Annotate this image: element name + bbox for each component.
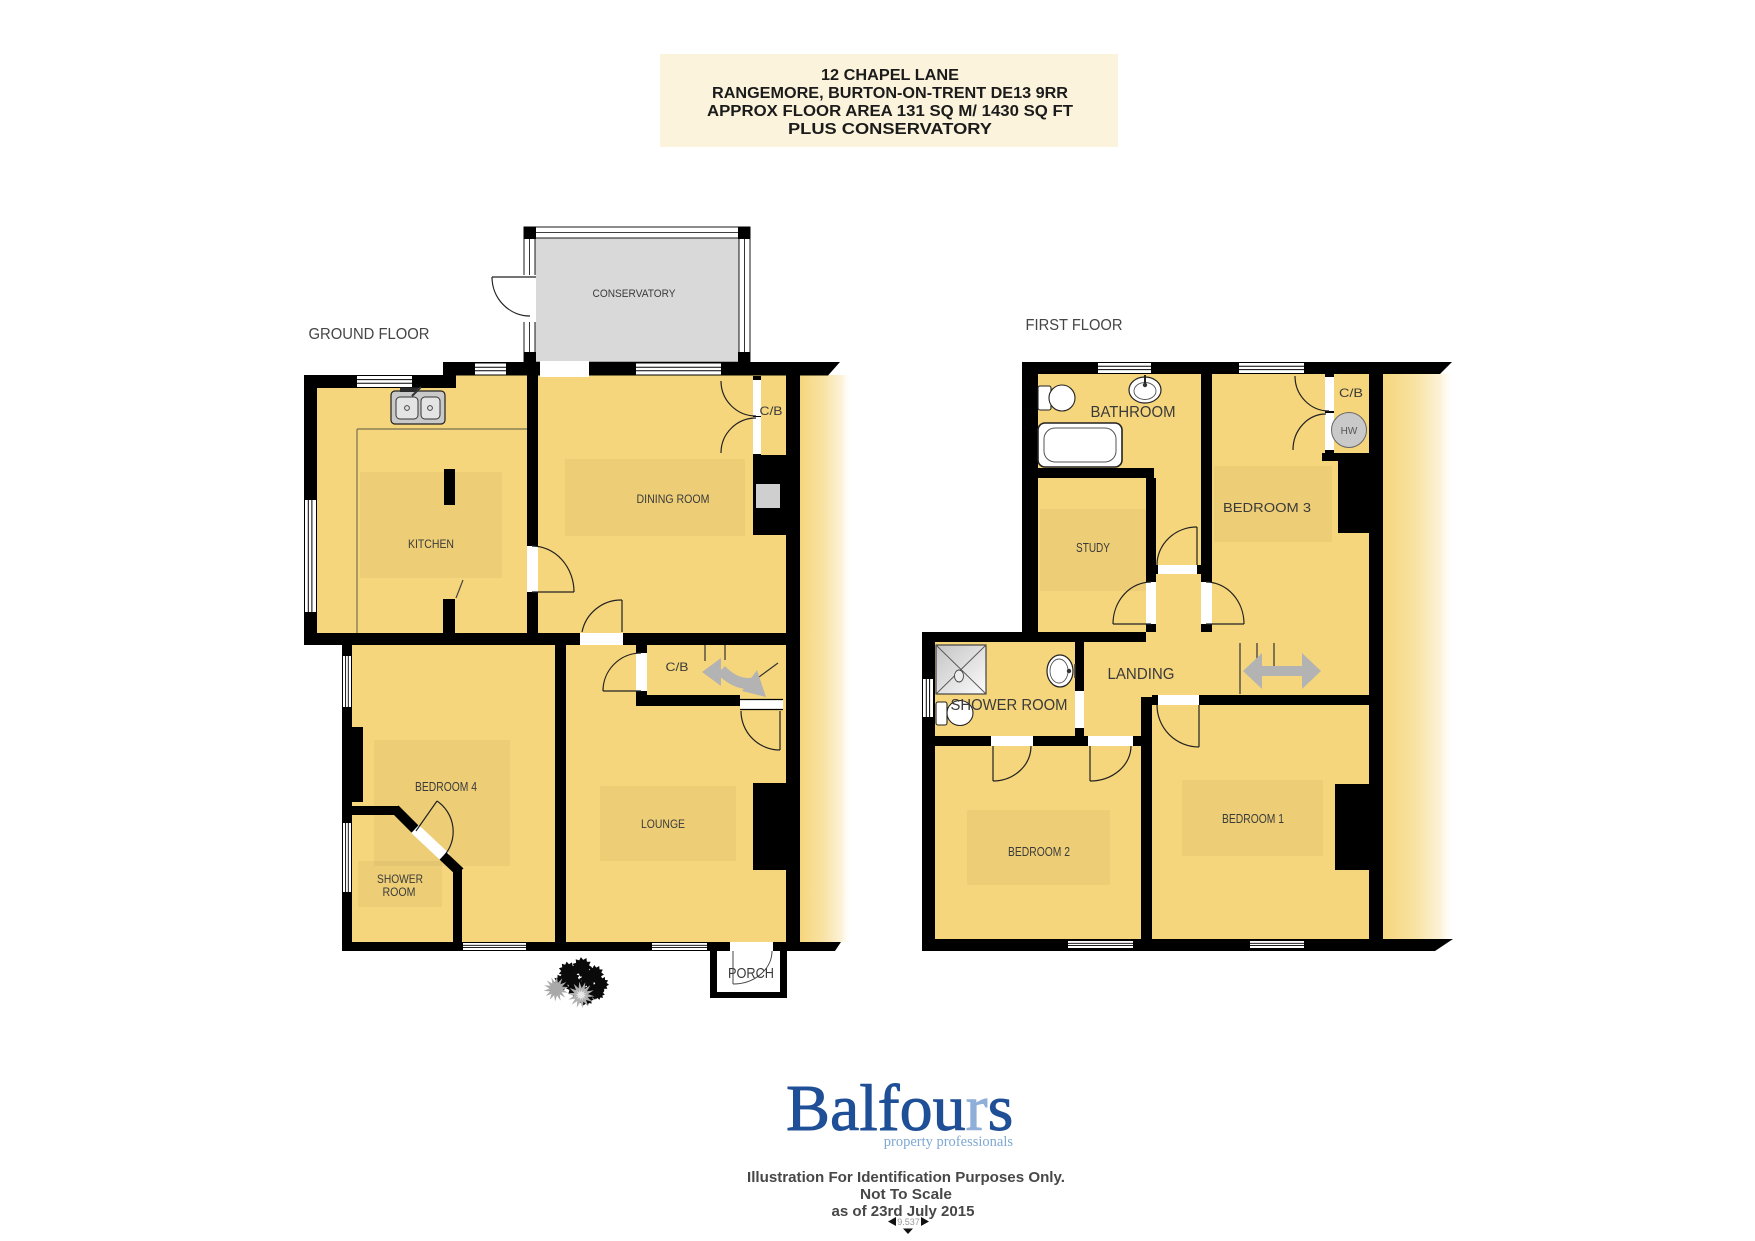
svg-text:GROUND FLOOR: GROUND FLOOR bbox=[309, 326, 430, 343]
svg-text:12 CHAPEL LANE: 12 CHAPEL LANE bbox=[821, 67, 959, 84]
svg-text:BEDROOM 3: BEDROOM 3 bbox=[1223, 500, 1311, 515]
svg-text:LANDING: LANDING bbox=[1108, 666, 1175, 683]
svg-text:C/B: C/B bbox=[760, 404, 783, 418]
svg-text:BEDROOM 1: BEDROOM 1 bbox=[1222, 812, 1284, 826]
svg-text:SHOWER: SHOWER bbox=[377, 872, 423, 886]
svg-text:HW: HW bbox=[1341, 426, 1358, 437]
svg-text:BEDROOM 2: BEDROOM 2 bbox=[1008, 845, 1070, 859]
svg-text:DINING ROOM: DINING ROOM bbox=[637, 492, 710, 506]
svg-text:PLUS CONSERVATORY: PLUS CONSERVATORY bbox=[788, 121, 992, 138]
svg-text:APPROX FLOOR AREA 131 SQ M/ 14: APPROX FLOOR AREA 131 SQ M/ 1430 SQ FT bbox=[707, 103, 1073, 120]
svg-text:SHOWER ROOM: SHOWER ROOM bbox=[951, 697, 1068, 714]
svg-text:BATHROOM: BATHROOM bbox=[1091, 404, 1176, 421]
svg-text:property professionals: property professionals bbox=[884, 1134, 1014, 1150]
svg-text:BEDROOM 4: BEDROOM 4 bbox=[415, 780, 477, 794]
svg-text:STUDY: STUDY bbox=[1076, 540, 1110, 555]
svg-text:KITCHEN: KITCHEN bbox=[408, 537, 454, 551]
svg-text:FIRST FLOOR: FIRST FLOOR bbox=[1026, 317, 1123, 334]
svg-text:RANGEMORE, BURTON-ON-TRENT DE1: RANGEMORE, BURTON-ON-TRENT DE13 9RR bbox=[712, 85, 1068, 102]
svg-text:Not To Scale: Not To Scale bbox=[860, 1186, 952, 1203]
svg-text:C/B: C/B bbox=[1339, 386, 1363, 400]
svg-text:PORCH: PORCH bbox=[728, 965, 774, 982]
svg-text:LOUNGE: LOUNGE bbox=[641, 819, 685, 831]
svg-text:CONSERVATORY: CONSERVATORY bbox=[593, 288, 677, 300]
svg-text:C/B: C/B bbox=[666, 660, 689, 674]
svg-text:Illustration For Identificatio: Illustration For Identification Purposes… bbox=[747, 1169, 1065, 1186]
svg-text:9.537: 9.537 bbox=[897, 1217, 920, 1227]
svg-text:ROOM: ROOM bbox=[383, 885, 416, 899]
